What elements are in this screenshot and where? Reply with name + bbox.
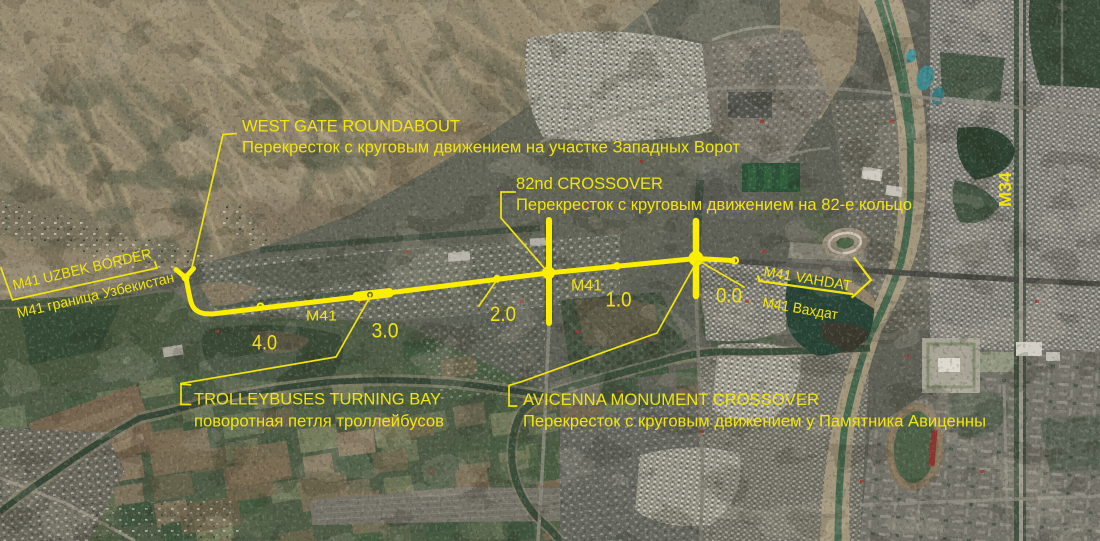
svg-text:Перекресток с круговым движени: Перекресток с круговым движением на учас… <box>242 138 740 157</box>
svg-text:Перекресток с круговым движени: Перекресток с круговым движением на 82-е… <box>516 195 912 214</box>
svg-text:WEST GATE ROUNDABOUT: WEST GATE ROUNDABOUT <box>242 117 460 136</box>
svg-text:4.0: 4.0 <box>252 332 277 355</box>
svg-text:поворотная петля троллейбусов: поворотная петля троллейбусов <box>194 412 444 431</box>
svg-text:1.0: 1.0 <box>606 289 632 312</box>
svg-text:AVICENNA MONUMENT CROSSOVER: AVICENNA MONUMENT CROSSOVER <box>523 390 819 409</box>
svg-text:M41: M41 <box>571 278 602 295</box>
svg-text:M41: M41 <box>306 308 337 325</box>
svg-text:82nd CROSSOVER: 82nd CROSSOVER <box>516 174 663 193</box>
svg-text:2.0: 2.0 <box>490 303 516 326</box>
svg-text:TROLLEYBUSES TURNING BAY: TROLLEYBUSES TURNING BAY <box>194 390 441 409</box>
svg-text:Перекресток с круговым движени: Перекресток с круговым движением у Памят… <box>523 412 986 431</box>
svg-text:3.0: 3.0 <box>372 320 399 343</box>
svg-text:M34: M34 <box>995 172 1015 207</box>
svg-text:0.0: 0.0 <box>716 285 742 308</box>
